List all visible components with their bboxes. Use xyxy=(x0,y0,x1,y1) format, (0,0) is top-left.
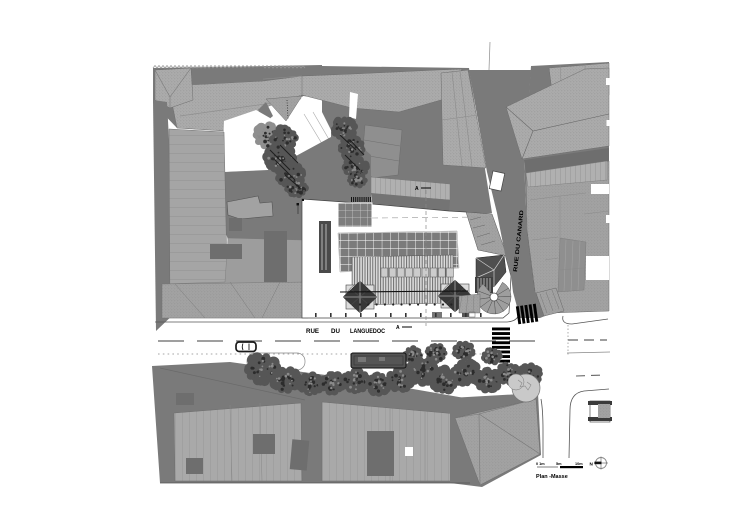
svg-text:5m: 5m xyxy=(556,462,562,466)
svg-text:LANGUEDOC: LANGUEDOC xyxy=(350,328,385,335)
svg-text:10m: 10m xyxy=(575,462,583,466)
svg-text:Plan -Masse: Plan -Masse xyxy=(536,474,568,480)
svg-text:0 1m: 0 1m xyxy=(536,462,545,466)
svg-text:A: A xyxy=(415,186,419,192)
svg-text:RUE: RUE xyxy=(306,328,319,335)
svg-text:A: A xyxy=(396,325,400,331)
svg-text:DU: DU xyxy=(331,328,340,335)
